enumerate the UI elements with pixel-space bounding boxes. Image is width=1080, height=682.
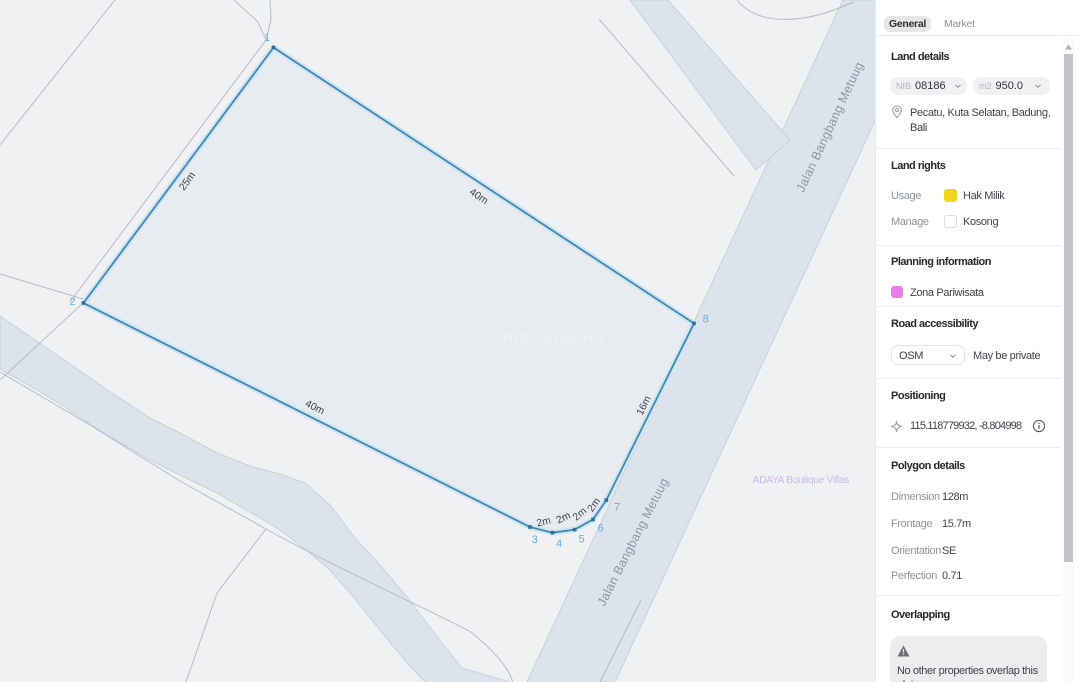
svg-text:7: 7 <box>614 502 620 514</box>
svg-text:4: 4 <box>556 538 562 550</box>
svg-text:5: 5 <box>579 534 585 546</box>
svg-text:ADAYA Boutique Villas: ADAYA Boutique Villas <box>753 475 850 486</box>
svg-text:8: 8 <box>703 314 709 326</box>
svg-text:NIB 08186 HM 950: NIB 08186 HM 950 <box>504 330 639 345</box>
svg-text:6: 6 <box>598 523 604 535</box>
svg-text:3: 3 <box>532 534 538 546</box>
svg-text:2: 2 <box>69 296 75 308</box>
svg-text:1: 1 <box>264 32 270 44</box>
